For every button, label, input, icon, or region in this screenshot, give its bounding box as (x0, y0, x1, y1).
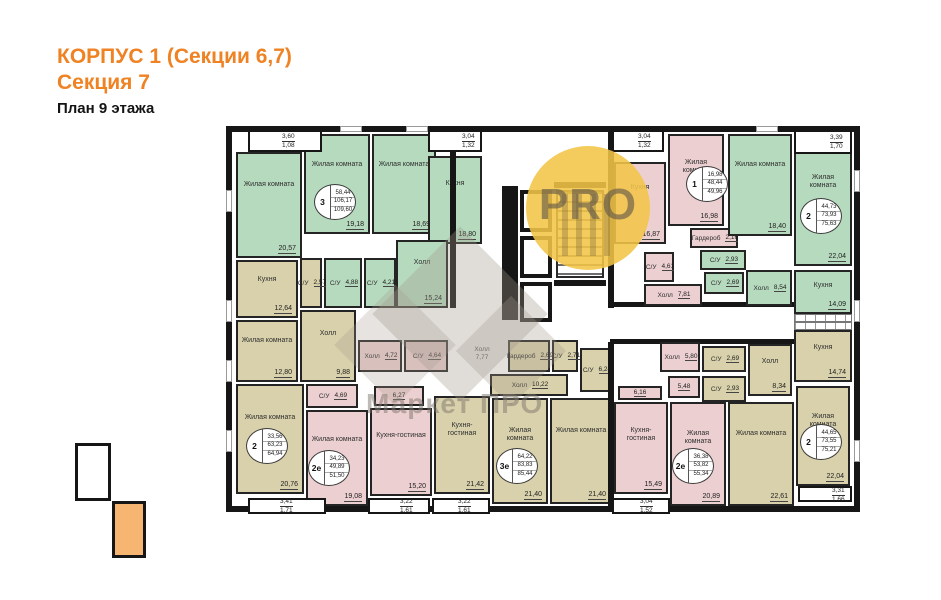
apartment-area-value: 83,83 (513, 462, 537, 471)
apartment-badge: 116,9848,4449,96 (686, 166, 728, 202)
watermark-pro-logo: PRO (526, 146, 650, 270)
apartment-area-value: 64,94 (263, 451, 287, 459)
apartment-badge: 2е34,2349,8951,50 (308, 450, 350, 486)
balcony-area-label: 3,411,71 (280, 498, 293, 514)
apartment-badge: 3е64,2283,8385,44 (496, 448, 538, 484)
room-area: 2,71 (568, 352, 581, 360)
kitchen-counter (794, 314, 852, 322)
room-area: 20,76 (280, 481, 298, 490)
room-name: Жилая комната (238, 337, 296, 345)
window (226, 430, 232, 452)
apartment-badge: 244,6573,5575,21 (800, 424, 842, 460)
room: Жилая комната12,80 (236, 320, 298, 382)
room-name: Жилая комната (308, 436, 366, 444)
room-name: Кухня-гостиная (372, 432, 430, 440)
room: 6,16 (618, 386, 662, 400)
room: Кухня14,74 (794, 330, 852, 382)
room: С/У2,57 (300, 258, 322, 308)
room-area: 7,81 (678, 291, 691, 299)
apartment-area-value: 48,44 (703, 180, 727, 189)
balcony-area-label: 3,041,32 (462, 133, 475, 149)
room: С/У2,93 (702, 376, 746, 402)
room-area: 21,40 (524, 491, 542, 500)
window (226, 190, 232, 212)
room-area: 2,57 (314, 279, 327, 287)
balcony-area-label: 3,041,52 (640, 498, 653, 514)
title-building: КОРПУС 1 (Секции 6,7) (57, 44, 292, 70)
room-name: Жилая комната (374, 161, 434, 169)
room-name: Жилая комната (238, 414, 302, 422)
apartment-area-value: 16,98 (703, 172, 727, 181)
apartment-area-value: 36,38 (689, 454, 713, 463)
room: С/У4,88 (324, 258, 362, 308)
room-name: Кухня-гостиная (436, 422, 488, 438)
window (854, 440, 860, 462)
room: Жилая комната22,61 (728, 402, 794, 506)
wall-segment (554, 280, 606, 286)
apartment-area-value: 64,22 (513, 454, 537, 463)
room-name: Холл (752, 285, 771, 292)
page-title: КОРПУС 1 (Секции 6,7) Секция 7 План 9 эт… (57, 44, 292, 120)
window (406, 126, 428, 132)
room-area: 16,87 (642, 231, 660, 240)
room-name: Жилая комната (730, 430, 792, 438)
room-area: 12,80 (274, 369, 292, 378)
room-area: 22,61 (770, 493, 788, 502)
apartment-area-value: 33,56 (263, 434, 287, 443)
room-area: 9,88 (336, 369, 350, 378)
room-area: 8,54 (774, 284, 787, 292)
apartment-badge: 244,7373,9375,63 (800, 198, 842, 234)
apartment-badge: 2е36,3853,8255,34 (672, 448, 714, 484)
apartment-area-value: 106,17 (331, 198, 355, 207)
apartment-area-value: 75,63 (817, 221, 841, 229)
room-area: 16,98 (700, 213, 718, 222)
balcony (368, 498, 430, 514)
room-area: 12,64 (274, 305, 292, 314)
room-area: 20,89 (702, 493, 720, 502)
balcony-area-label: 3,221,61 (400, 498, 413, 514)
watermark-brand-text: Маркет ПРО (366, 388, 596, 420)
room-area: 8,34 (772, 383, 786, 392)
room: С/У2,69 (702, 346, 746, 372)
window (226, 360, 232, 382)
balcony-area-label: 3,311,66 (832, 487, 845, 503)
balcony-area-label: 3,391,70 (830, 134, 843, 150)
apartment-area-value: 49,89 (325, 464, 349, 473)
balcony-area-label: 3,601,08 (282, 133, 295, 149)
window (340, 126, 362, 132)
room-name: С/У (317, 393, 332, 400)
room-name: Жилая комната (238, 181, 300, 189)
room-name: Кухня-гостиная (616, 427, 666, 443)
room-area: 6,16 (634, 389, 647, 397)
legend-section-inactive (75, 443, 111, 501)
balcony (794, 130, 852, 154)
room-name: С/У (708, 257, 723, 264)
room: Кухня-гостиная15,20 (370, 408, 432, 496)
room: Жилая комната20,57 (236, 152, 302, 258)
room-name: С/У (296, 280, 311, 287)
room: С/У4,69 (306, 384, 358, 408)
room-name: Гардероб (690, 235, 723, 242)
room-area: 19,18 (346, 221, 364, 230)
room-area: 21,40 (588, 491, 606, 500)
room-name: С/У (581, 367, 596, 374)
apartment-area-value: 58,44 (331, 190, 355, 199)
room-area: 4,88 (345, 279, 358, 287)
room: Кухня14,09 (794, 270, 852, 314)
title-floor: План 9 этажа (57, 98, 292, 120)
room-name: Жилая комната (672, 430, 724, 446)
apartment-badge: 233,5663,2364,94 (246, 428, 288, 464)
watermark-pro-text: PRO (526, 180, 650, 230)
title-section: Секция 7 (57, 70, 292, 96)
room-name: Холл (656, 292, 675, 299)
window (854, 170, 860, 192)
window (756, 126, 778, 132)
room-area: 2,69 (726, 355, 739, 363)
apartment-area-value: 44,73 (817, 204, 841, 213)
room-name: Жилая комната (730, 161, 790, 169)
apartment-area-value: 85,44 (513, 471, 537, 479)
room: Кухня12,64 (236, 260, 298, 318)
room-area: 22,04 (826, 473, 844, 482)
room-name: Жилая комната (552, 427, 610, 435)
apartment-area-value: 34,23 (325, 456, 349, 465)
room-name: С/У (328, 280, 343, 287)
room-name: Холл (663, 354, 682, 361)
room: Холл7,81 (644, 284, 702, 306)
corridor (610, 302, 794, 344)
apartment-area-value: 75,21 (817, 447, 841, 455)
apartment-area-value: 63,23 (263, 442, 287, 451)
room: С/У2,69 (704, 272, 744, 294)
apartment-area-value: 73,55 (817, 438, 841, 447)
apartment-area-value: 73,93 (817, 212, 841, 221)
apartment-area-value: 55,34 (689, 471, 713, 479)
apartment-area-value: 51,50 (325, 473, 349, 481)
room: Холл8,54 (746, 270, 792, 306)
room-area: 4,61 (662, 263, 675, 271)
balcony-area-label: 3,041,32 (638, 133, 651, 149)
room-name: С/У (644, 264, 659, 271)
room-area: 2,93 (726, 385, 739, 393)
wall-segment (608, 342, 614, 506)
apartment-area-value: 49,96 (703, 189, 727, 197)
room-area: 4,69 (334, 392, 347, 400)
room-name: Кухня (796, 282, 850, 290)
apartment-area-value: 44,65 (817, 430, 841, 439)
room: Жилая комната18,69 (372, 134, 436, 234)
room-area: 22,04 (828, 253, 846, 262)
room-name: Жилая комната (494, 427, 546, 443)
room-name: С/У (709, 356, 724, 363)
room: Кухня-гостиная15,49 (614, 402, 668, 494)
room-area: 14,74 (828, 369, 846, 378)
room: 5,48 (668, 376, 700, 398)
room-name: Жилая комната (306, 161, 368, 169)
kitchen-counter (794, 322, 852, 330)
room-name: Жилая комната (796, 174, 850, 190)
room: С/У4,61 (644, 252, 674, 282)
room-area: 20,57 (278, 245, 296, 254)
room: Холл5,80 (660, 342, 700, 372)
room-area: 5,80 (685, 353, 698, 361)
room-name: Холл (750, 358, 790, 366)
room-name: Кухня (238, 276, 296, 284)
room-area: 21,42 (466, 481, 484, 490)
room-area: 5,48 (678, 383, 691, 391)
apartment-area-value: 109,60 (331, 207, 355, 215)
room-area: 18,40 (768, 223, 786, 232)
room-area: 14,09 (828, 301, 846, 310)
window (854, 300, 860, 322)
apartment-badge: 358,44106,17109,60 (314, 184, 356, 220)
room: Жилая комната18,40 (728, 134, 792, 236)
room-area: 15,20 (408, 483, 426, 492)
balcony-area-label: 3,221,61 (458, 498, 471, 514)
room-area: 2,69 (726, 279, 739, 287)
room-name: Кухня (796, 344, 850, 352)
legend-section-active (112, 501, 146, 558)
apartment-area-value: 53,82 (689, 462, 713, 471)
room-area: 15,49 (644, 481, 662, 490)
room-area: 2,93 (725, 256, 738, 264)
room-name: С/У (365, 280, 380, 287)
room-area: 19,08 (344, 493, 362, 502)
window (226, 300, 232, 322)
room-name: С/У (709, 280, 724, 287)
room: С/У2,93 (700, 250, 746, 270)
room: Холл8,34 (748, 344, 792, 396)
room-name: С/У (709, 386, 724, 393)
